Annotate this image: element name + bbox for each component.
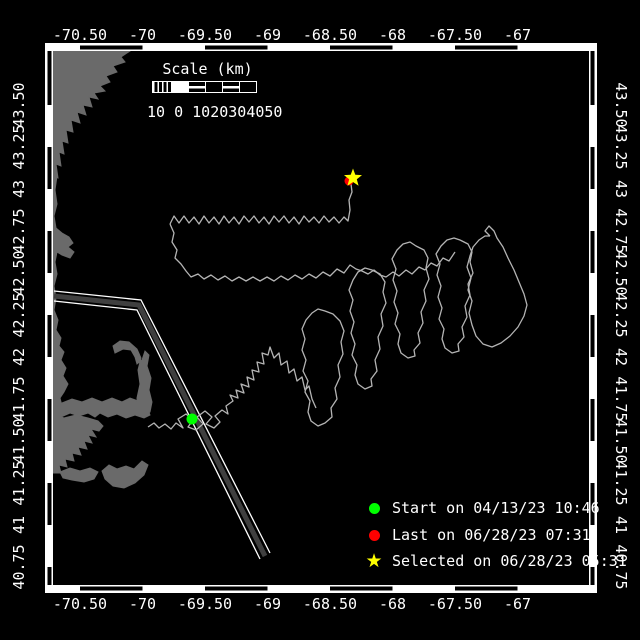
scale-bar — [152, 81, 257, 93]
latitude-label-right: 41 — [612, 516, 630, 534]
longitude-label-bottom: -70 — [129, 595, 156, 613]
frame-stripe — [591, 399, 595, 441]
track-approach-leg — [148, 347, 316, 430]
longitude-label-top: -70.50 — [53, 26, 107, 44]
latitude-label-left: 41.75 — [10, 376, 28, 421]
frame-stripe — [591, 315, 595, 357]
longitude-label-top: -67 — [504, 26, 531, 44]
longitude-label-top: -68.50 — [303, 26, 357, 44]
scale-bar-segment-hline — [222, 81, 240, 93]
frame-stripe — [330, 46, 393, 50]
scale-bar-title: Scale (km) — [150, 60, 265, 78]
latitude-label-left: 40.75 — [10, 544, 28, 589]
longitude-label-bottom: -67.50 — [428, 595, 482, 613]
track-lower-transect — [170, 224, 455, 281]
scale-bar-segment-empty — [239, 81, 257, 93]
longitude-label-bottom: -69.50 — [178, 595, 232, 613]
frame-stripe — [591, 231, 595, 273]
frame-stripe — [591, 567, 595, 585]
land-polygon — [53, 398, 150, 418]
frame-stripe — [48, 147, 52, 189]
latitude-label-left: 43 — [10, 180, 28, 198]
longitude-label-top: -69 — [254, 26, 281, 44]
latitude-label-right: 43.50 — [612, 82, 630, 127]
latitude-label-right: 43 — [612, 180, 630, 198]
frame-stripe — [80, 587, 143, 591]
landmass-layer — [53, 51, 152, 488]
frame-stripe — [48, 231, 52, 273]
latitude-label-right: 40.75 — [612, 544, 630, 589]
longitude-label-top: -67.50 — [428, 26, 482, 44]
latitude-label-left: 41 — [10, 516, 28, 534]
track-layer — [148, 184, 527, 430]
latitude-label-left: 41.50 — [10, 418, 28, 463]
latitude-label-left: 43.25 — [10, 124, 28, 169]
frame-stripe — [205, 587, 268, 591]
latitude-label-right: 42.25 — [612, 292, 630, 337]
longitude-label-top: -68 — [379, 26, 406, 44]
latitude-label-right: 43.25 — [612, 124, 630, 169]
latitude-label-right: 41.75 — [612, 376, 630, 421]
frame-stripe — [455, 46, 518, 50]
land-polygon — [53, 51, 130, 178]
frame-stripe — [330, 587, 393, 591]
track-survey-loop — [302, 309, 344, 426]
land-polygon — [60, 468, 98, 482]
track-survey-loop — [392, 242, 429, 358]
latitude-label-left: 42.50 — [10, 250, 28, 295]
latitude-label-right: 41.50 — [612, 418, 630, 463]
frame-stripe — [455, 587, 518, 591]
land-polygon — [53, 414, 103, 473]
latitude-label-left: 43.50 — [10, 82, 28, 127]
track-upper-transect — [170, 184, 352, 224]
scale-bar-ticks: 10 0 1020304050 — [147, 103, 282, 121]
latitude-label-right: 42 — [612, 348, 630, 366]
frame-stripe — [48, 483, 52, 525]
latitude-label-left: 42 — [10, 348, 28, 366]
scale-bar-segment-hline — [188, 81, 206, 93]
longitude-label-bottom: -70.50 — [53, 595, 107, 613]
latitude-label-left: 42.25 — [10, 292, 28, 337]
longitude-label-bottom: -68.50 — [303, 595, 357, 613]
start-marker — [187, 414, 198, 425]
land-polygon — [102, 461, 148, 488]
latitude-label-right: 42.50 — [612, 250, 630, 295]
frame-stripe — [80, 46, 143, 50]
track-survey-loop — [436, 238, 473, 353]
frame-stripe — [48, 51, 52, 105]
chart-frame — [46, 44, 597, 593]
frame-stripe — [205, 46, 268, 50]
latitude-label-left: 42.75 — [10, 208, 28, 253]
scale-bar-segment-empty — [205, 81, 223, 93]
scale-bar-segment-solid — [171, 81, 189, 93]
frame-inner-rect — [53, 51, 590, 586]
longitude-label-bottom: -67 — [504, 595, 531, 613]
longitude-label-top: -70 — [129, 26, 156, 44]
glider-track-map: -70.50-70.50-70-70-69.50-69.50-69-69-68.… — [0, 0, 640, 640]
frame-stripe — [591, 147, 595, 189]
frame-outer-rect — [46, 44, 597, 593]
latitude-label-right: 41.25 — [612, 460, 630, 505]
frame-stripe — [591, 483, 595, 525]
frame-stripe — [591, 51, 595, 105]
longitude-label-top: -69.50 — [178, 26, 232, 44]
scale-bar-segment-hatch — [152, 81, 172, 93]
map-canvas — [0, 0, 640, 640]
frame-stripe — [48, 567, 52, 585]
longitude-label-bottom: -68 — [379, 595, 406, 613]
frame-stripe — [48, 399, 52, 441]
latitude-label-right: 42.75 — [612, 208, 630, 253]
longitude-label-bottom: -69 — [254, 595, 281, 613]
latitude-label-left: 41.25 — [10, 460, 28, 505]
frame-stripe — [48, 315, 52, 357]
track-survey-loop — [349, 268, 386, 389]
track-survey-loop — [467, 226, 527, 347]
